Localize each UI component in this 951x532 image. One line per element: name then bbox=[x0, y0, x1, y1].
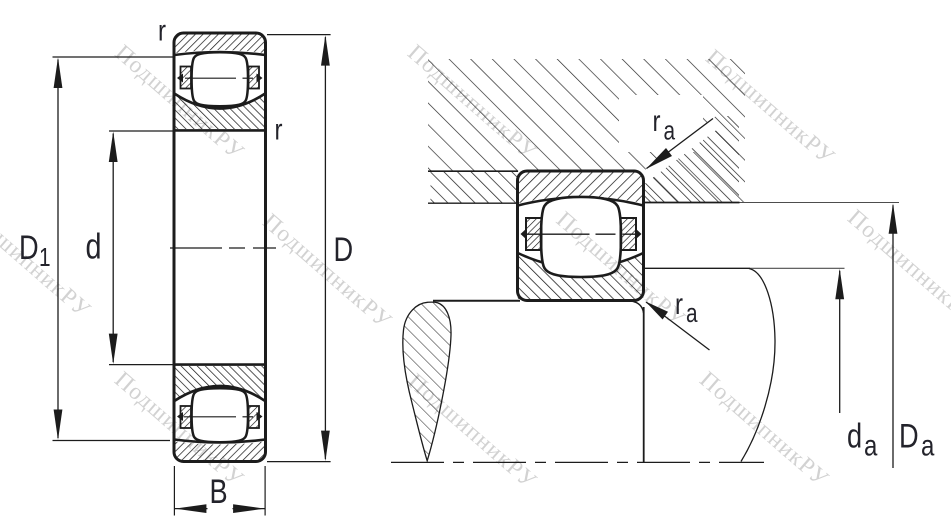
svg-text:D: D bbox=[899, 417, 919, 456]
svg-text:a: a bbox=[921, 428, 935, 462]
svg-text:B: B bbox=[210, 472, 228, 511]
svg-text:d: d bbox=[86, 225, 102, 266]
svg-text:r: r bbox=[158, 13, 166, 47]
svg-text:D: D bbox=[334, 230, 354, 269]
svg-text:a: a bbox=[664, 116, 676, 145]
svg-text:a: a bbox=[864, 428, 878, 462]
svg-text:d: d bbox=[847, 417, 862, 456]
svg-text:1: 1 bbox=[39, 243, 51, 272]
svg-text:r: r bbox=[653, 103, 661, 137]
svg-text:r: r bbox=[275, 112, 283, 146]
svg-text:r: r bbox=[675, 286, 683, 320]
svg-text:a: a bbox=[686, 299, 698, 328]
svg-text:D: D bbox=[19, 228, 39, 267]
